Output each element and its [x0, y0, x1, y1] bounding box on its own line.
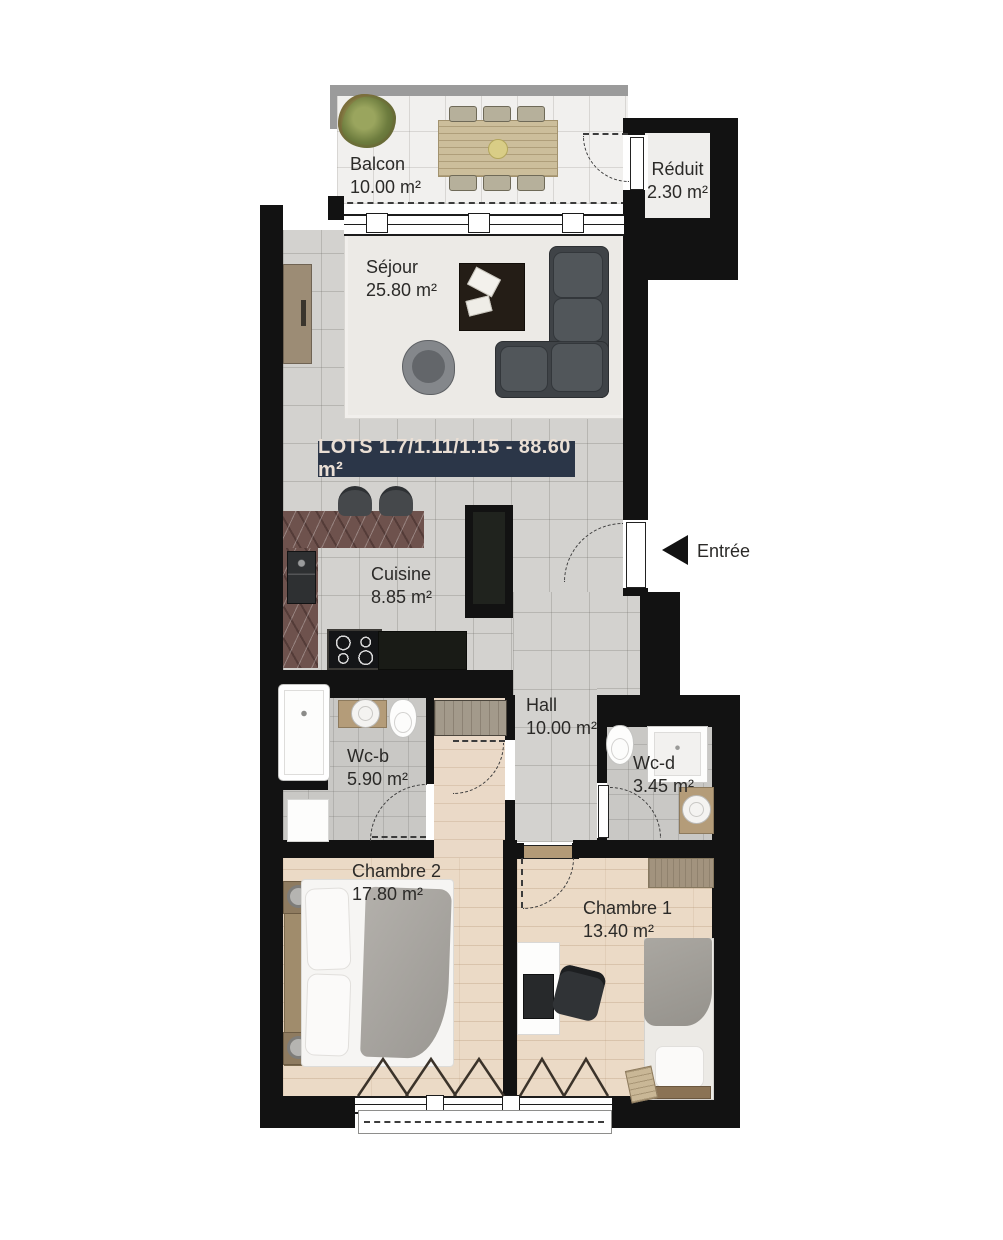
entree-text: Entrée: [697, 540, 750, 563]
pillow: [305, 973, 352, 1056]
door-swing: [372, 836, 426, 838]
folding-window-icon: [518, 1056, 610, 1098]
laptop-icon: [523, 974, 554, 1019]
chair-icon: [449, 175, 477, 191]
room-area: 3.45 m²: [633, 775, 694, 798]
room-name: Chambre 2: [352, 860, 441, 883]
room-label-sejour: Séjour 25.80 m²: [366, 256, 437, 303]
bathtub: [278, 684, 330, 781]
door-swing: [453, 740, 505, 742]
room-label-wcd: Wc-d 3.45 m²: [633, 752, 694, 799]
wall: [623, 280, 648, 520]
wall: [260, 205, 283, 1128]
door-post: [572, 843, 579, 859]
sink-basin: [351, 699, 380, 728]
room-label-wcb: Wc-b 5.90 m²: [347, 745, 408, 792]
balcony-boundary-line: [337, 202, 627, 204]
entree-arrow-icon: [662, 535, 688, 565]
room-label-cuisine: Cuisine 8.85 m²: [371, 563, 432, 610]
room-name: Séjour: [366, 256, 437, 279]
chair-icon: [483, 106, 511, 122]
wall: [328, 196, 344, 220]
duct-shaft-inner: [473, 512, 505, 604]
room-name: Hall: [526, 694, 597, 717]
sideboard-handle: [301, 300, 306, 326]
room-area: 13.40 m²: [583, 920, 672, 943]
floor-plan: LOTS 1.7/1.11/1.15 - 88.60 m²: [0, 0, 1003, 1240]
door-opening: [505, 740, 515, 800]
toilet: [389, 699, 417, 738]
sill-line: [364, 1121, 604, 1123]
wall: [573, 840, 740, 858]
room-area: 25.80 m²: [366, 279, 437, 302]
coffee-table: [459, 263, 525, 331]
sofa-cushion: [553, 298, 603, 342]
table-centerpiece: [488, 139, 508, 159]
room-name: Balcon: [350, 153, 421, 176]
wall: [260, 840, 434, 858]
rug: [648, 858, 714, 888]
wall: [426, 698, 434, 784]
bar-stool: [338, 486, 372, 516]
window-mullion: [562, 213, 584, 233]
wardrobe: [434, 700, 507, 736]
oven: [287, 551, 316, 604]
room-label-chambre2: Chambre 2 17.80 m²: [352, 860, 441, 907]
door-leaf: [630, 137, 644, 190]
sofa-cushion: [500, 346, 548, 392]
chair-icon: [449, 106, 477, 122]
chair-icon: [483, 175, 511, 191]
room-label-chambre1: Chambre 1 13.40 m²: [583, 897, 672, 944]
armchair-seat: [412, 350, 445, 383]
pillow: [305, 887, 352, 970]
window-mullion: [468, 213, 490, 233]
room-area: 10.00 m²: [350, 176, 421, 199]
balcony-railing: [330, 85, 628, 96]
wall: [712, 727, 740, 1128]
wall: [640, 592, 680, 702]
blanket: [644, 938, 712, 1026]
window-mullion: [366, 213, 388, 233]
entree-label: Entrée: [697, 540, 750, 563]
cooktop: [327, 629, 382, 670]
lots-banner: LOTS 1.7/1.11/1.15 - 88.60 m²: [318, 441, 575, 477]
sofa-cushion: [553, 252, 603, 298]
room-label-balcon: Balcon 10.00 m²: [350, 153, 421, 200]
door-swing: [583, 133, 628, 135]
room-area: 17.80 m²: [352, 883, 441, 906]
wall: [505, 800, 515, 840]
wall: [260, 1096, 355, 1128]
room-label-hall: Hall 10.00 m²: [526, 694, 597, 741]
entrance-door-leaf: [626, 522, 646, 588]
folding-window-icon: [356, 1056, 506, 1098]
room-label-reduit: Réduit 2.30 m²: [645, 158, 710, 205]
door-opening: [426, 784, 434, 840]
chair-icon: [517, 106, 545, 122]
kitchen-counter: [281, 511, 424, 548]
room-name: Wc-b: [347, 745, 408, 768]
toilet: [606, 725, 634, 765]
bar-stool: [379, 486, 413, 516]
door-leaf: [598, 785, 609, 838]
sofa-cushion: [551, 343, 603, 392]
room-area: 5.90 m²: [347, 768, 408, 791]
door-lintel: [523, 845, 575, 859]
sideboard: [283, 264, 312, 364]
room-name: Cuisine: [371, 563, 432, 586]
room-name: Wc-d: [633, 752, 694, 775]
pillow: [655, 1046, 704, 1088]
room-area: 10.00 m²: [526, 717, 597, 740]
kitchen-worktop-dark: [378, 631, 467, 670]
room-name: Réduit: [651, 158, 703, 181]
room-name: Chambre 1: [583, 897, 672, 920]
wall: [597, 727, 607, 783]
room-area: 8.85 m²: [371, 586, 432, 609]
wall: [597, 695, 740, 727]
door-post: [517, 843, 524, 859]
chair-icon: [517, 175, 545, 191]
washing-machine: [287, 799, 329, 842]
sink-basin: [682, 795, 711, 824]
room-area: 2.30 m²: [647, 181, 708, 204]
